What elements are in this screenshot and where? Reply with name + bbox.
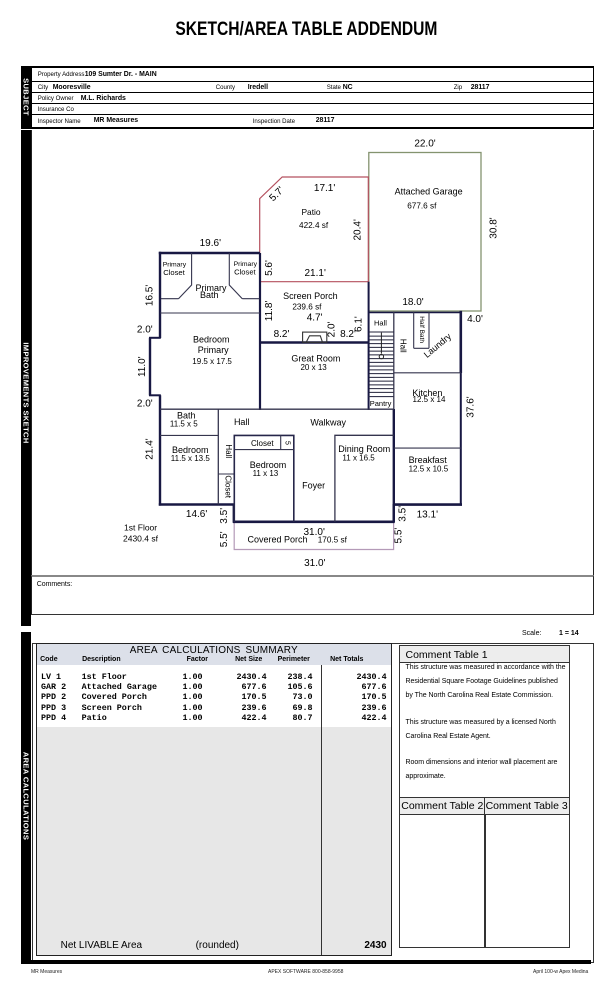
svg-text:20.4': 20.4' [353, 219, 364, 240]
svg-text:19.5 x 17.5: 19.5 x 17.5 [192, 357, 232, 366]
svg-text:Bedroom: Bedroom [193, 335, 230, 345]
svg-text:Closet: Closet [251, 439, 274, 448]
svg-text:2430.4 sf: 2430.4 sf [123, 533, 159, 543]
svg-text:19.6': 19.6' [200, 238, 221, 249]
svg-text:5.5': 5.5' [394, 528, 405, 544]
svg-text:677.6 sf: 677.6 sf [407, 201, 437, 210]
svg-text:1st Floor: 1st Floor [124, 522, 157, 532]
svg-text:Foyer: Foyer [302, 481, 325, 491]
svg-text:5.6': 5.6' [264, 260, 275, 276]
svg-text:13.1': 13.1' [417, 510, 438, 521]
svg-text:170.5 sf: 170.5 sf [318, 535, 348, 544]
svg-text:11.5 x 13.5: 11.5 x 13.5 [171, 454, 211, 463]
svg-text:17.1': 17.1' [314, 183, 335, 194]
svg-text:20 x 13: 20 x 13 [300, 363, 327, 372]
svg-text:3.5': 3.5' [219, 508, 230, 524]
svg-text:37.6': 37.6' [465, 396, 476, 417]
svg-text:14.6': 14.6' [186, 509, 207, 520]
svg-text:11.0': 11.0' [137, 356, 148, 377]
svg-text:5: 5 [283, 441, 290, 445]
svg-text:Closet: Closet [223, 475, 232, 498]
svg-text:Dining Room: Dining Room [338, 444, 390, 454]
svg-text:21.1': 21.1' [305, 268, 326, 279]
svg-text:6.1': 6.1' [353, 316, 364, 332]
svg-text:5.5': 5.5' [219, 531, 230, 547]
svg-text:Bath: Bath [200, 290, 219, 300]
svg-text:11.8': 11.8' [264, 300, 275, 321]
svg-text:Hall: Hall [399, 339, 408, 353]
svg-text:4.0': 4.0' [467, 314, 483, 325]
svg-text:Closet: Closet [163, 268, 185, 277]
svg-text:2.0': 2.0' [137, 324, 153, 335]
svg-text:12.5 x 14: 12.5 x 14 [413, 395, 446, 404]
svg-text:Closet: Closet [234, 267, 256, 276]
svg-text:422.4 sf: 422.4 sf [299, 221, 329, 230]
svg-text:Laundry: Laundry [422, 331, 454, 360]
svg-text:16.5': 16.5' [144, 285, 155, 306]
svg-text:21.4': 21.4' [145, 438, 156, 459]
svg-text:Screen Porch: Screen Porch [283, 291, 338, 301]
svg-text:Patio: Patio [301, 207, 320, 217]
svg-text:Walkway: Walkway [310, 417, 346, 427]
svg-text:Hall: Hall [374, 318, 387, 327]
svg-text:31.0': 31.0' [304, 558, 325, 569]
svg-text:2.0': 2.0' [137, 399, 153, 410]
svg-text:8.2': 8.2' [274, 329, 290, 340]
svg-text:3.5': 3.5' [398, 506, 409, 522]
svg-text:11 x 13: 11 x 13 [253, 469, 279, 478]
svg-text:Primary: Primary [198, 345, 229, 355]
svg-text:4.7': 4.7' [307, 312, 323, 323]
svg-text:Breakfast: Breakfast [409, 455, 448, 465]
svg-text:Pantry: Pantry [370, 399, 392, 408]
svg-text:Hall: Hall [224, 444, 233, 458]
svg-text:11.5 x 5: 11.5 x 5 [170, 420, 198, 429]
svg-text:30.8': 30.8' [489, 217, 500, 238]
svg-text:12.5 x 10.5: 12.5 x 10.5 [409, 465, 449, 474]
svg-text:Attached Garage: Attached Garage [395, 186, 463, 196]
svg-text:2.0': 2.0' [326, 321, 337, 337]
svg-text:11 x 16.5: 11 x 16.5 [342, 454, 375, 463]
svg-text:239.6 sf: 239.6 sf [292, 302, 322, 311]
svg-text:Covered Porch: Covered Porch [247, 535, 307, 545]
svg-text:Hall: Hall [234, 417, 250, 427]
svg-text:22.0': 22.0' [414, 138, 435, 149]
svg-text:Half Bath: Half Bath [418, 316, 425, 343]
svg-text:18.0': 18.0' [402, 297, 423, 308]
